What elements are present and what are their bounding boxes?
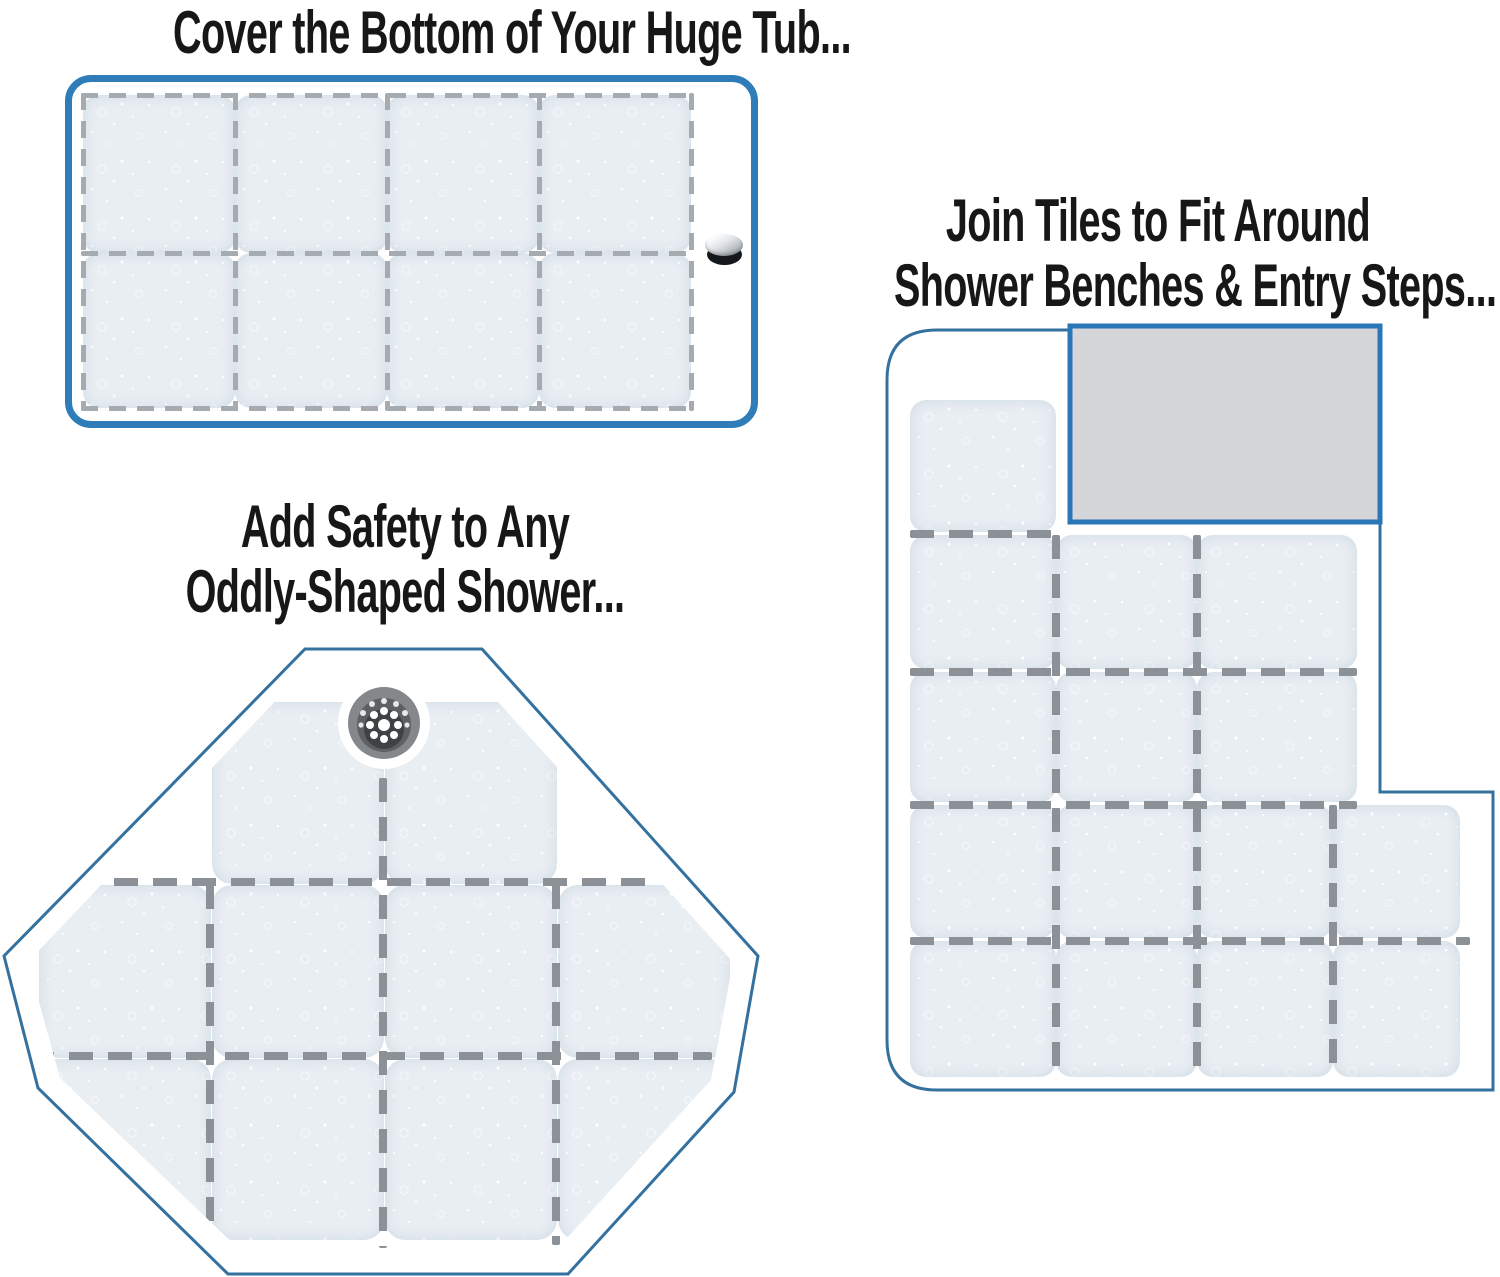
tile-seam-dashed-line (1052, 535, 1060, 1077)
mat-tile (1056, 941, 1197, 1077)
product-infographic: Cover the Bottom of Your Huge Tub... Add… (0, 0, 1500, 1277)
tile-seam-dashed-line (910, 937, 1470, 945)
tile-seam-dashed-line (385, 93, 390, 411)
mat-tile (910, 941, 1056, 1077)
mat-tile (235, 253, 387, 408)
mat-tile (1197, 672, 1357, 802)
tile-seam-dashed-line (689, 93, 694, 411)
mat-tile (387, 95, 539, 253)
bench-shower-panel (860, 300, 1500, 1110)
mat-tile (539, 253, 691, 408)
mat-tile (83, 253, 235, 408)
odd-shower-title-line1: Add Safety to Any (141, 494, 669, 559)
odd-shower-title-line2: Oddly-Shaped Shower... (141, 559, 669, 624)
mat-tile (385, 885, 557, 1058)
mat-tile (1197, 941, 1333, 1077)
mat-tile (235, 95, 387, 253)
tub-title: Cover the Bottom of Your Huge Tub... (173, 0, 701, 65)
mat-tile (1056, 672, 1197, 802)
bench-shower-title-line1: Join Tiles to Fit Around (894, 188, 1422, 253)
tile-seam-dashed-line (379, 778, 387, 1248)
mat-tile (1056, 535, 1197, 669)
tile-seam-dashed-line (910, 668, 1357, 676)
mat-tile (1333, 941, 1460, 1077)
mat-tile (910, 805, 1056, 938)
mat-tile (539, 95, 691, 253)
bench-shower-title: Join Tiles to Fit Around Shower Benches … (894, 188, 1422, 318)
mat-tile (212, 885, 384, 1058)
shower-drain-icon (348, 687, 420, 759)
tub-panel (60, 70, 770, 440)
drain-plug-icon (705, 233, 745, 267)
mat-tile (385, 1059, 557, 1240)
tile-seam-dashed-line (206, 885, 214, 1245)
tile-seam-dashed-line (1193, 535, 1201, 1077)
tile-seam-dashed-line (910, 530, 1056, 538)
tile-seam-dashed-line (75, 878, 648, 886)
tile-seam-dashed-line (552, 885, 560, 1245)
mat-tile (1333, 805, 1460, 938)
mat-tile (910, 400, 1056, 532)
mat-tile (1197, 535, 1357, 669)
tile-seam-dashed-line (30, 1052, 712, 1060)
mat-tile (212, 1059, 384, 1240)
odd-shower-title: Add Safety to Any Oddly-Shaped Shower... (141, 494, 669, 624)
tile-seam-dashed-line (910, 801, 1357, 809)
mat-tile (387, 253, 539, 408)
plug-cap (705, 234, 743, 256)
mat-tile (83, 95, 235, 253)
odd-shower-panel (0, 630, 780, 1277)
tile-seam-dashed-line (537, 93, 542, 411)
mat-tile (910, 672, 1056, 802)
mat-tile (1197, 805, 1333, 938)
mat-tile (910, 535, 1056, 669)
tile-seam-dashed-line (1329, 805, 1337, 1077)
mat-tile (1056, 805, 1197, 938)
tile-seam-dashed-line (233, 93, 238, 411)
tile-seam-dashed-line (81, 93, 86, 411)
